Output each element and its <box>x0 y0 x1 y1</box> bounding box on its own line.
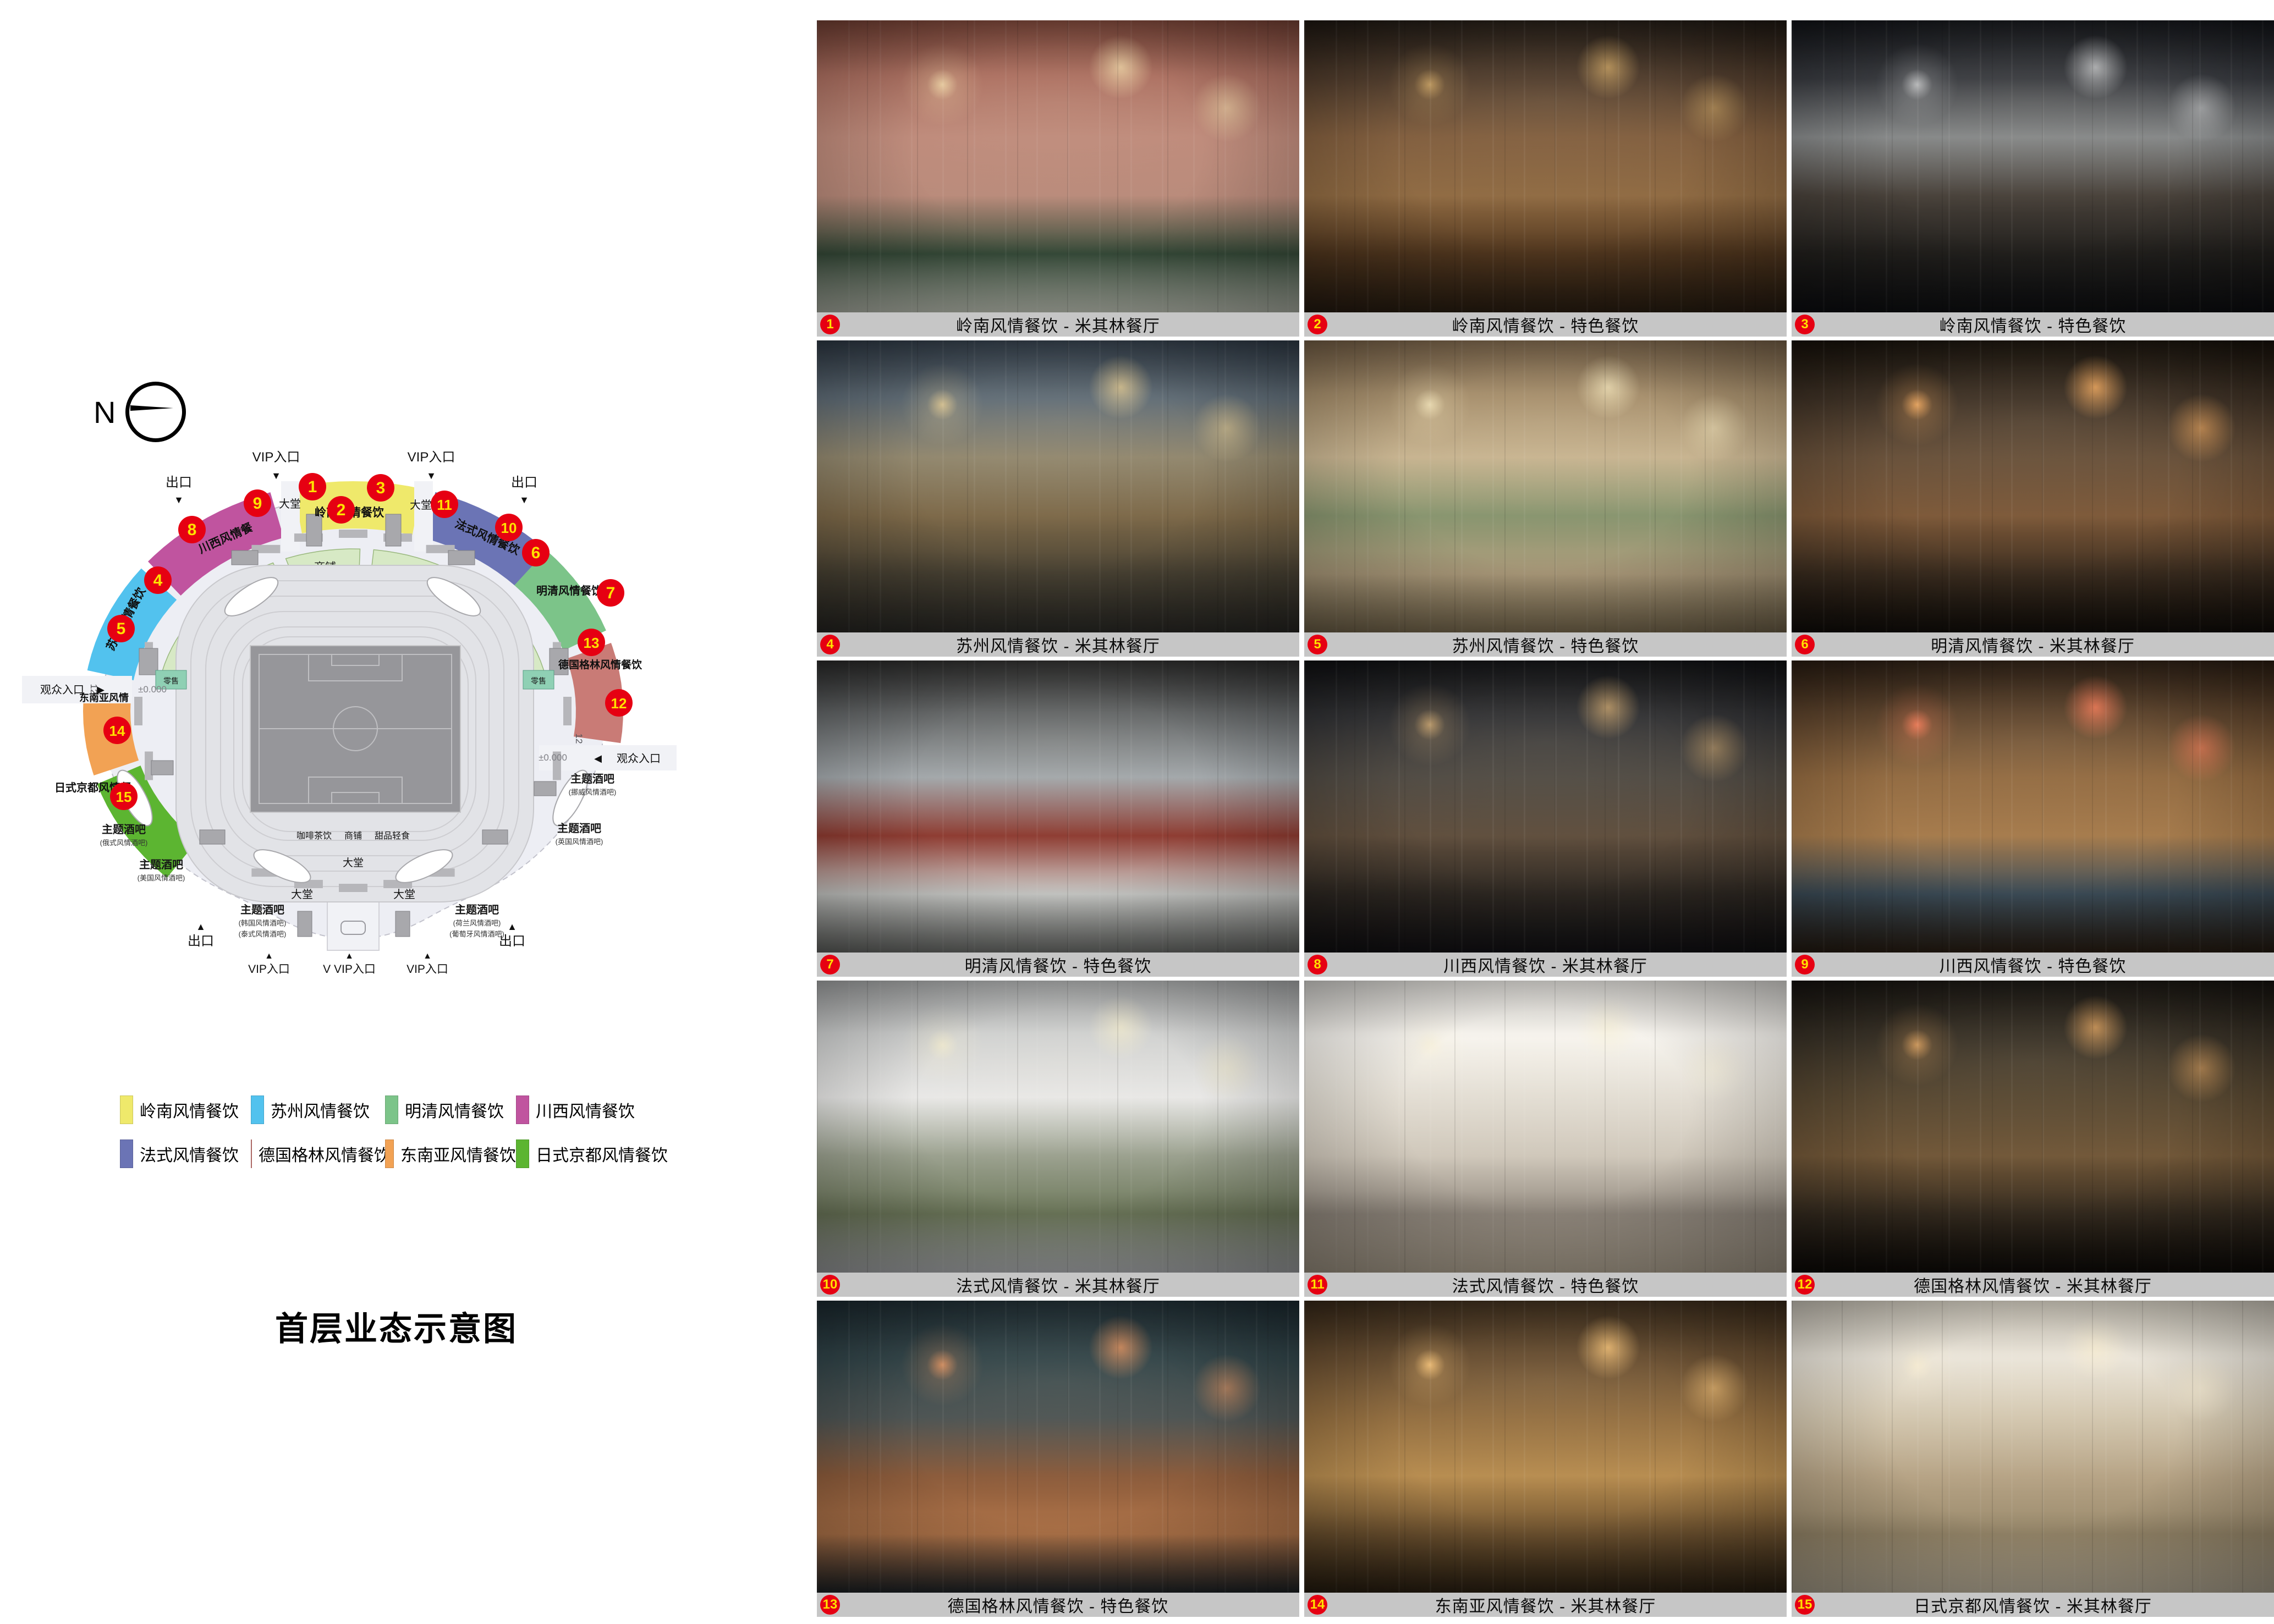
caption-text: 川西风情餐饮 - 米其林餐厅 <box>1443 953 1647 977</box>
zone-marker-number: 8 <box>188 521 197 539</box>
seat-section <box>339 530 367 538</box>
floor-plan-svg: 商铺商铺商铺商铺商铺商铺商铺商铺商铺商铺 零售零售 岭南风情餐饮川西风情餐法式风… <box>22 450 677 1000</box>
plan-text: 观众入口 <box>40 684 84 696</box>
legend-item-4: 川西风情餐饮 <box>516 1095 769 1124</box>
caption-number-badge: 8 <box>1308 955 1327 975</box>
page-title: 首层业态示意图 <box>275 1302 518 1350</box>
caption-text: 东南亚风情餐饮 - 米其林餐厅 <box>1435 1593 1656 1617</box>
caption-number-badge: 3 <box>1795 315 1815 334</box>
photo-card-5: 5苏州风情餐饮 - 特色餐饮 <box>1304 340 1787 657</box>
restaurant-photo-12 <box>1792 981 2274 1273</box>
restaurant-photo-6 <box>1792 340 2274 632</box>
legend-swatch <box>251 1139 252 1168</box>
restaurant-photo-13 <box>817 1301 1299 1593</box>
compass-needle-icon <box>129 386 174 431</box>
plan-text: ▼ <box>426 470 436 481</box>
zone-marker-number: 9 <box>253 494 262 513</box>
caption-bar: 6明清风情餐饮 - 米其林餐厅 <box>1792 632 2274 657</box>
caption-bar: 3岭南风情餐饮 - 特色餐饮 <box>1792 312 2274 337</box>
photo-card-14: 14东南亚风情餐饮 - 米其林餐厅 <box>1304 1301 1787 1617</box>
caption-bar: 15日式京都风情餐饮 - 米其林餐厅 <box>1792 1593 2274 1617</box>
plan-text: ▲ <box>423 951 432 961</box>
plan-text: ▲ <box>345 951 354 961</box>
caption-text: 明清风情餐饮 - 特色餐饮 <box>965 953 1152 977</box>
zone-marker-number: 15 <box>116 789 132 805</box>
caption-number-badge: 14 <box>1308 1595 1327 1615</box>
theme-bar-sublabel: (葡萄牙风情酒吧) <box>449 930 504 938</box>
theme-bar-sublabel: (挪威风情酒吧) <box>569 788 617 796</box>
caption-number-badge: 9 <box>1795 955 1815 975</box>
zone-marker-number: 6 <box>531 544 541 562</box>
stair-block <box>386 514 401 546</box>
legend-swatch <box>251 1095 264 1124</box>
photo-card-6: 6明清风情餐饮 - 米其林餐厅 <box>1792 340 2274 657</box>
plan-text: 甜品轻食 <box>375 831 410 841</box>
photo-card-15: 15日式京都风情餐饮 - 米其林餐厅 <box>1792 1301 2274 1617</box>
theme-bar-label-4: 主题酒吧 <box>139 858 183 871</box>
plan-text: 12 <box>89 684 99 695</box>
stair-block <box>151 761 173 775</box>
compass-icon <box>125 382 186 442</box>
restaurant-photo-3 <box>1792 20 2274 312</box>
caption-number-badge: 1 <box>820 315 840 334</box>
caption-number-badge: 2 <box>1308 315 1327 334</box>
caption-bar: 1岭南风情餐饮 - 米其林餐厅 <box>817 312 1299 337</box>
legend-label: 东南亚风情餐饮 <box>400 1142 516 1166</box>
theme-bar-sublabel: (韩国风情酒吧) <box>239 919 287 927</box>
compass: N <box>94 382 186 442</box>
zone-label: 明清风情餐饮 <box>536 584 603 597</box>
caption-number-badge: 7 <box>820 955 840 975</box>
plan-text: ◀ <box>594 753 602 764</box>
photo-card-13: 13德国格林风情餐饮 - 特色餐饮 <box>817 1301 1299 1617</box>
stair-block <box>232 550 258 565</box>
zone-marker-number: 7 <box>606 584 616 602</box>
caption-number-badge: 10 <box>820 1275 840 1295</box>
stair-block <box>448 550 475 565</box>
plan-text: ▲ <box>507 921 517 932</box>
caption-text: 法式风情餐饮 - 米其林餐厅 <box>956 1273 1160 1297</box>
theme-bar-sublabel: (美国风情酒吧) <box>138 874 185 882</box>
zone-label: 德国格林风情餐饮 <box>558 658 642 671</box>
restaurant-photo-14 <box>1304 1301 1787 1593</box>
plan-text: V VIP入口 <box>323 963 376 976</box>
zone-marker-number: 10 <box>501 520 517 536</box>
caption-bar: 7明清风情餐饮 - 特色餐饮 <box>817 953 1299 977</box>
photo-card-10: 10法式风情餐饮 - 米其林餐厅 <box>817 981 1299 1297</box>
restaurant-photo-8 <box>1304 660 1787 953</box>
seat-section <box>563 697 572 725</box>
plan-text: 大堂 <box>410 499 432 511</box>
legend-item-1: 岭南风情餐饮 <box>120 1095 251 1124</box>
plan-text: 咖啡茶饮 <box>296 831 332 841</box>
restaurant-photo-1 <box>817 20 1299 312</box>
plan-text: ±0.000 <box>539 752 567 763</box>
legend-item-5: 法式风情餐饮 <box>120 1139 251 1168</box>
theme-bar-sublabel: (泰式风情酒吧) <box>239 930 287 938</box>
caption-bar: 14东南亚风情餐饮 - 米其林餐厅 <box>1304 1593 1787 1617</box>
restaurant-photo-10 <box>817 981 1299 1273</box>
retail-label: 零售 <box>531 676 546 685</box>
plan-text: 大堂 <box>343 857 364 869</box>
football-pitch <box>250 646 460 812</box>
zone-marker-number: 12 <box>611 695 627 712</box>
legend-label: 明清风情餐饮 <box>405 1098 504 1122</box>
stair-block <box>139 648 158 675</box>
legend-swatch <box>120 1139 133 1168</box>
photo-card-4: 4苏州风情餐饮 - 米其林餐厅 <box>817 340 1299 657</box>
theme-bar-label-1: 主题酒吧 <box>570 772 614 785</box>
theme-bar-label-5: 主题酒吧 <box>240 903 284 916</box>
legend-item-2: 苏州风情餐饮 <box>251 1095 385 1124</box>
caption-text: 德国格林风情餐饮 - 特色餐饮 <box>948 1593 1169 1617</box>
restaurant-photo-9 <box>1792 660 2274 953</box>
caption-bar: 2岭南风情餐饮 - 特色餐饮 <box>1304 312 1787 337</box>
plan-text: VIP入口 <box>248 963 290 976</box>
plan-text: 观众入口 <box>617 752 661 765</box>
legend-item-7: 东南亚风情餐饮 <box>385 1139 516 1168</box>
restaurant-photo-11 <box>1304 981 1787 1273</box>
caption-text: 明清风情餐饮 - 米其林餐厅 <box>1931 632 2135 657</box>
caption-number-badge: 5 <box>1308 635 1327 654</box>
caption-bar: 5苏州风情餐饮 - 特色餐饮 <box>1304 632 1787 657</box>
theme-bar-label-3: 主题酒吧 <box>102 823 146 836</box>
plan-text: ▼ <box>519 494 529 505</box>
photo-card-11: 11法式风情餐饮 - 特色餐饮 <box>1304 981 1787 1297</box>
plan-text: 大堂 <box>393 888 415 901</box>
caption-bar: 12德国格林风情餐饮 - 米其林餐厅 <box>1792 1273 2274 1297</box>
legend: 岭南风情餐饮苏州风情餐饮明清风情餐饮川西风情餐饮法式风情餐饮德国格林风情餐饮东南… <box>120 1095 769 1168</box>
caption-number-badge: 15 <box>1795 1595 1815 1615</box>
theme-bar-sublabel: (俄式风情酒吧) <box>100 839 148 847</box>
theme-bar-label-2: 主题酒吧 <box>557 822 601 835</box>
legend-label: 苏州风情餐饮 <box>271 1098 370 1122</box>
seat-section <box>339 884 367 892</box>
zone-marker-number: 2 <box>337 501 346 519</box>
stair-block <box>298 911 312 937</box>
plan-text: VIP入口 <box>252 450 300 465</box>
plan-text: 12 <box>574 734 584 744</box>
plan-text: ▼ <box>174 494 184 505</box>
plan-text: 商铺 <box>344 831 362 841</box>
restaurant-photo-4 <box>817 340 1299 632</box>
caption-number-badge: 11 <box>1308 1275 1327 1295</box>
photo-card-8: 8川西风情餐饮 - 米其林餐厅 <box>1304 660 1787 977</box>
caption-text: 岭南风情餐饮 - 特色餐饮 <box>1940 312 2127 337</box>
photo-gallery: 1岭南风情餐饮 - 米其林餐厅2岭南风情餐饮 - 特色餐饮3岭南风情餐饮 - 特… <box>817 20 2274 1617</box>
legend-swatch <box>120 1095 133 1124</box>
legend-swatch <box>516 1095 529 1124</box>
stair-block <box>396 911 410 937</box>
caption-text: 德国格林风情餐饮 - 米其林餐厅 <box>1914 1273 2152 1297</box>
caption-text: 苏州风情餐饮 - 特色餐饮 <box>1452 632 1639 657</box>
stair-block <box>200 830 225 844</box>
restaurant-photo-5 <box>1304 340 1787 632</box>
plan-text: ▲ <box>265 951 273 961</box>
legend-label: 川西风情餐饮 <box>536 1098 635 1122</box>
photo-card-3: 3岭南风情餐饮 - 特色餐饮 <box>1792 20 2274 337</box>
legend-item-6: 德国格林风情餐饮 <box>251 1139 385 1168</box>
restaurant-photo-7 <box>817 660 1299 953</box>
seat-section <box>134 697 142 725</box>
zone-marker-number: 5 <box>117 620 126 638</box>
plan-text: ▲ <box>196 921 206 932</box>
photo-card-12: 12德国格林风情餐饮 - 米其林餐厅 <box>1792 981 2274 1297</box>
legend-swatch <box>516 1139 529 1168</box>
presentation-board: { "title": "首层业态示意图", "compass": {"label… <box>0 0 2274 1624</box>
theme-bar-sublabel: (荷兰风情酒吧) <box>453 919 501 927</box>
stair-block <box>482 830 508 844</box>
legend-item-8: 日式京都风情餐饮 <box>516 1139 769 1168</box>
zone-marker-number: 3 <box>376 479 386 497</box>
photo-card-2: 2岭南风情餐饮 - 特色餐饮 <box>1304 20 1787 337</box>
legend-label: 法式风情餐饮 <box>140 1142 239 1166</box>
caption-text: 法式风情餐饮 - 特色餐饮 <box>1452 1273 1639 1297</box>
theme-bar-sublabel: (英国风情酒吧) <box>556 838 603 846</box>
zone-marker-number: 1 <box>308 478 317 496</box>
caption-number-badge: 4 <box>820 635 840 654</box>
caption-text: 日式京都风情餐饮 - 米其林餐厅 <box>1914 1593 2152 1617</box>
compass-north-label: N <box>94 394 116 430</box>
zone-marker-number: 13 <box>584 635 600 651</box>
legend-label: 岭南风情餐饮 <box>140 1098 239 1122</box>
caption-bar: 13德国格林风情餐饮 - 特色餐饮 <box>817 1593 1299 1617</box>
caption-text: 苏州风情餐饮 - 米其林餐厅 <box>956 632 1160 657</box>
legend-swatch <box>385 1095 398 1124</box>
legend-label: 德国格林风情餐饮 <box>259 1142 391 1166</box>
caption-text: 岭南风情餐饮 - 米其林餐厅 <box>956 312 1160 337</box>
plan-text: VIP入口 <box>407 963 448 976</box>
plan-text: 大堂 <box>279 498 301 510</box>
photo-card-1: 1岭南风情餐饮 - 米其林餐厅 <box>817 20 1299 337</box>
caption-bar: 10法式风情餐饮 - 米其林餐厅 <box>817 1273 1299 1297</box>
floor-plan: 商铺商铺商铺商铺商铺商铺商铺商铺商铺商铺 零售零售 岭南风情餐饮川西风情餐法式风… <box>22 450 677 1000</box>
legend-item-3: 明清风情餐饮 <box>385 1095 516 1124</box>
theme-bar-label-6: 主题酒吧 <box>455 903 499 916</box>
caption-number-badge: 12 <box>1795 1275 1815 1295</box>
caption-bar: 9川西风情餐饮 - 特色餐饮 <box>1792 953 2274 977</box>
legend-label: 日式京都风情餐饮 <box>536 1142 668 1166</box>
plan-text: ±0.000 <box>138 684 167 695</box>
plan-text: 出口 <box>511 475 537 490</box>
caption-text: 川西风情餐饮 - 特色餐饮 <box>1940 953 2127 977</box>
photo-card-7: 7明清风情餐饮 - 特色餐饮 <box>817 660 1299 977</box>
stair-block <box>534 781 556 796</box>
caption-number-badge: 6 <box>1795 635 1815 654</box>
plan-text: VIP入口 <box>408 450 455 465</box>
photo-card-9: 9川西风情餐饮 - 特色餐饮 <box>1792 660 2274 977</box>
plan-text: ▼ <box>271 470 281 481</box>
plan-text: 大堂 <box>291 888 313 901</box>
restaurant-photo-15 <box>1792 1301 2274 1593</box>
caption-number-badge: 13 <box>820 1595 840 1615</box>
plan-text: 出口 <box>166 475 192 490</box>
caption-bar: 8川西风情餐饮 - 米其林餐厅 <box>1304 953 1787 977</box>
plan-text: 出口 <box>188 934 214 949</box>
restaurant-photo-2 <box>1304 20 1787 312</box>
caption-text: 岭南风情餐饮 - 特色餐饮 <box>1452 312 1639 337</box>
legend-swatch <box>385 1139 394 1168</box>
caption-bar: 4苏州风情餐饮 - 米其林餐厅 <box>817 632 1299 657</box>
zone-marker-number: 4 <box>153 571 163 590</box>
caption-bar: 11法式风情餐饮 - 特色餐饮 <box>1304 1273 1787 1297</box>
zone-marker-number: 14 <box>109 723 125 739</box>
zone-marker-number: 11 <box>437 497 452 513</box>
